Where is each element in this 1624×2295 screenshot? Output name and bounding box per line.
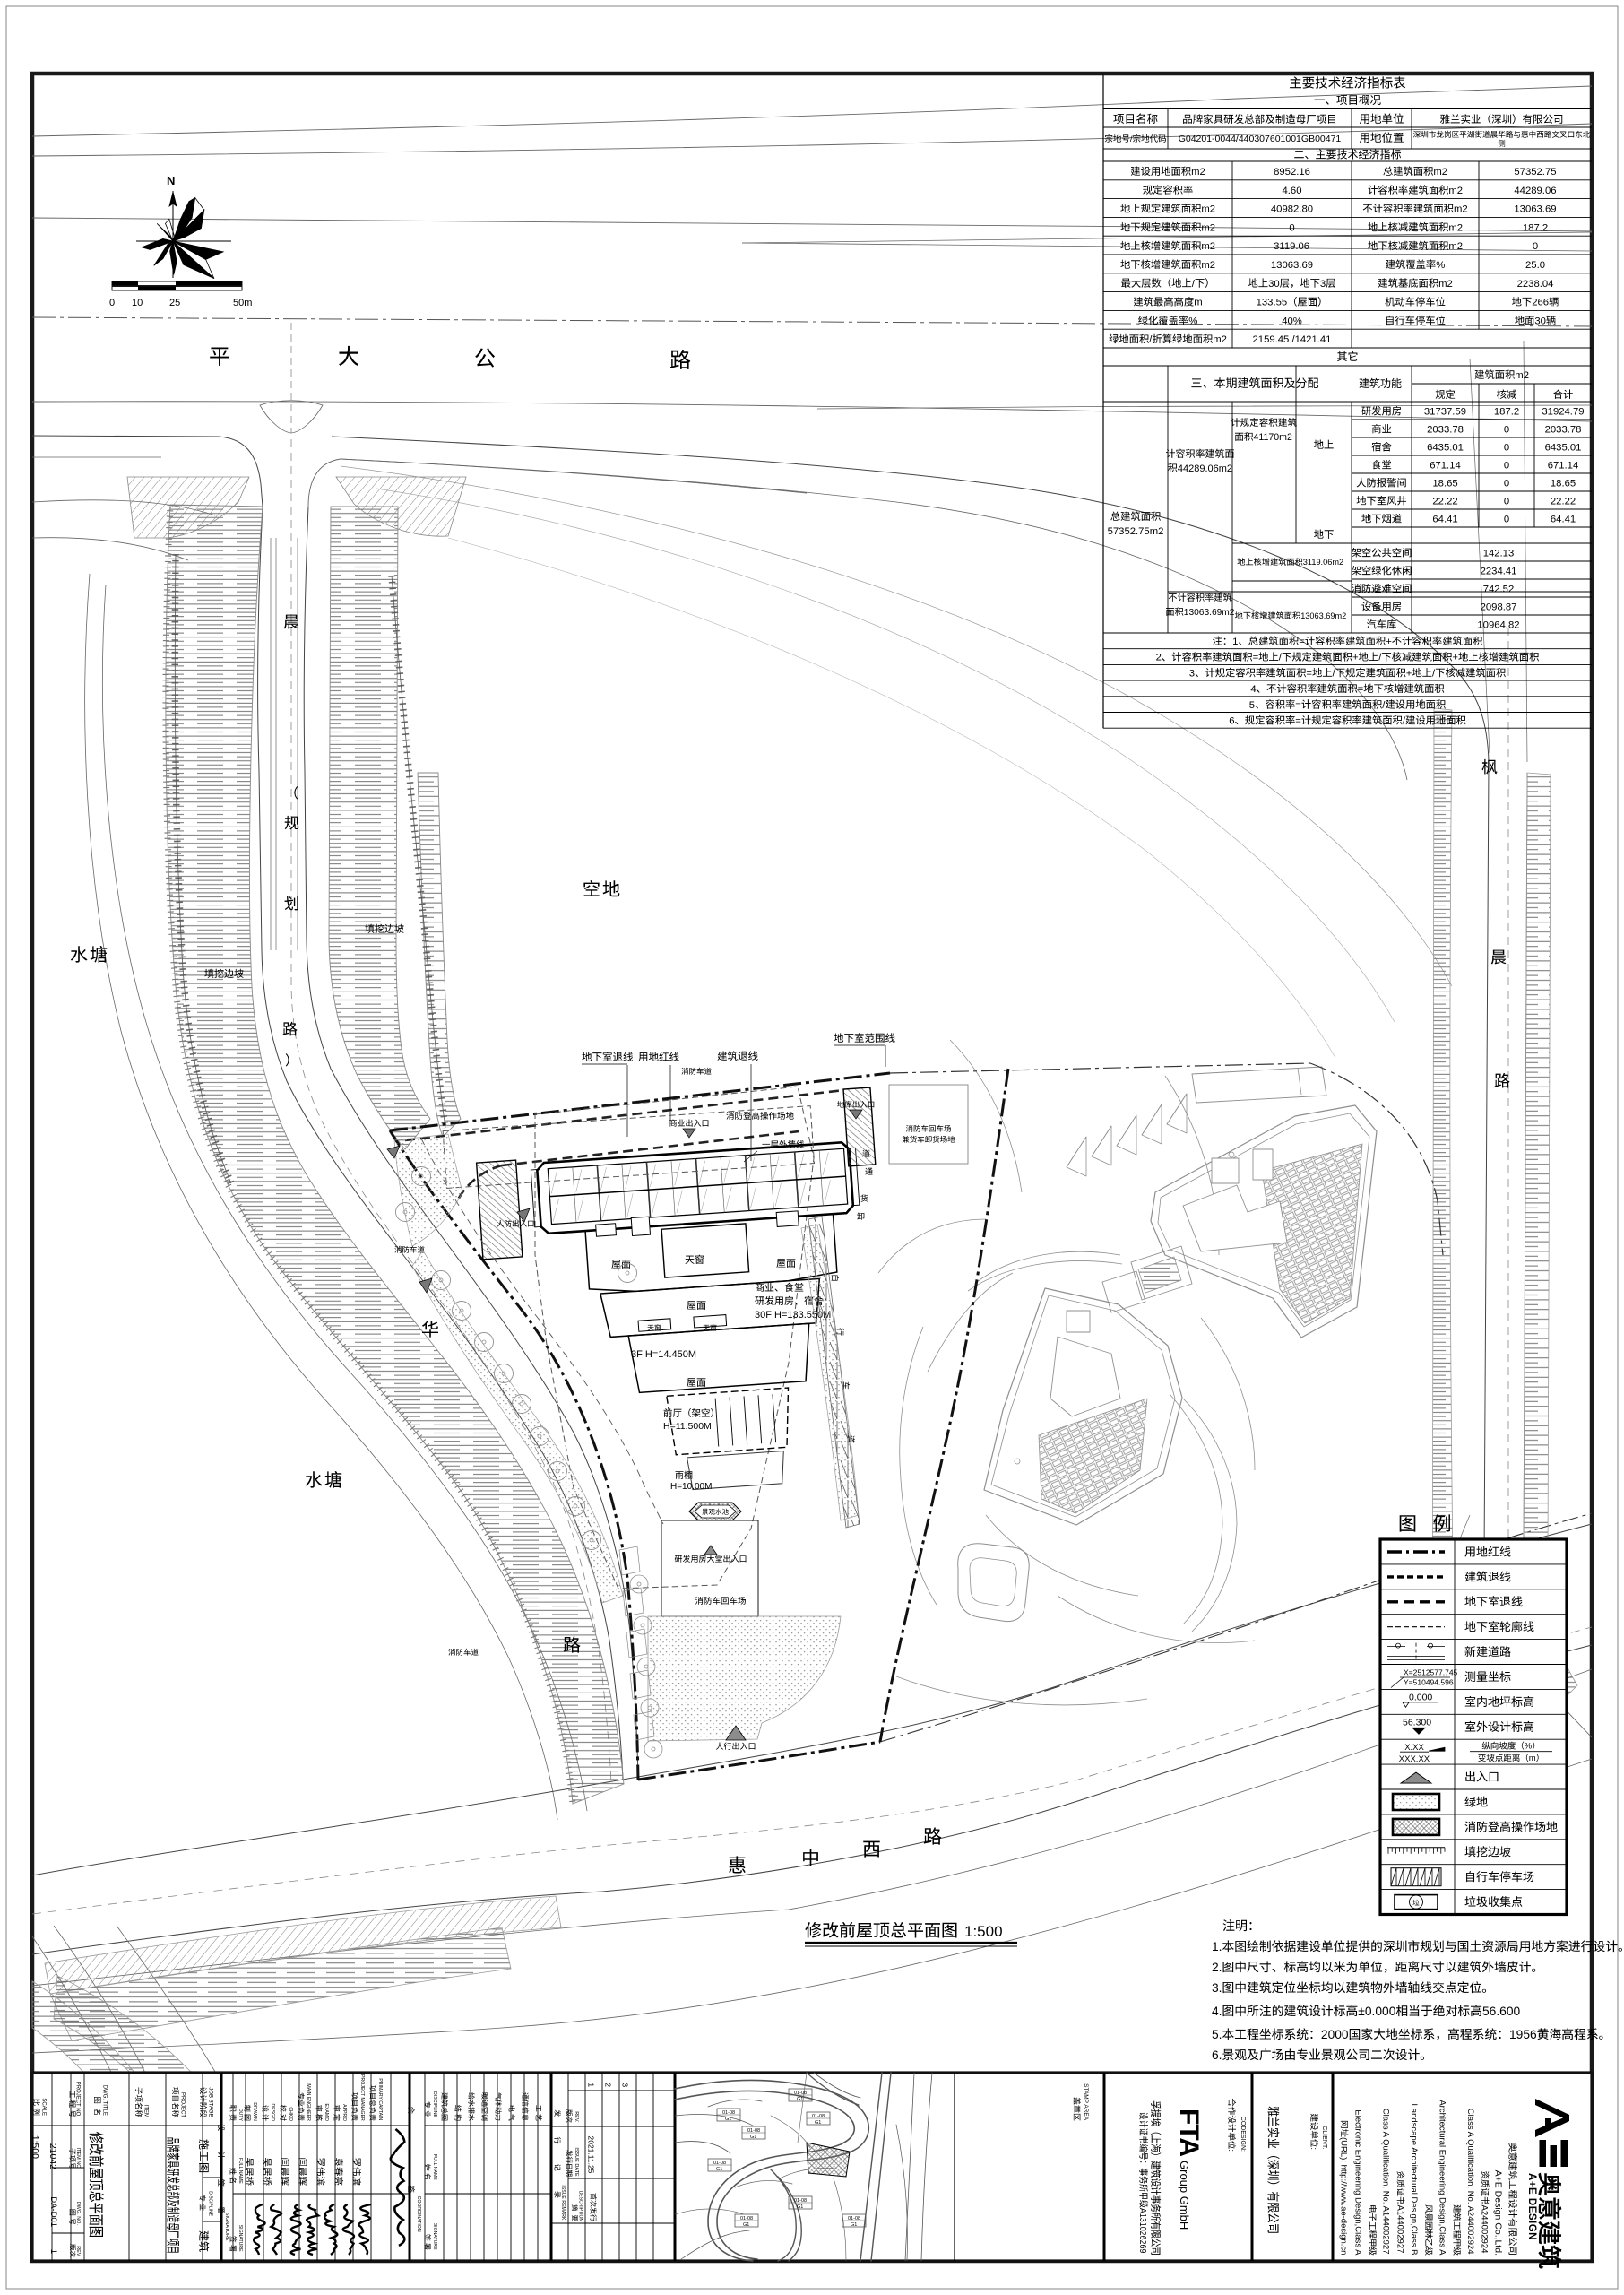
svg-text:6435.01: 6435.01 bbox=[1427, 443, 1464, 454]
svg-text:0: 0 bbox=[1504, 461, 1509, 472]
svg-text:CLIENT:: CLIENT: bbox=[1321, 2126, 1327, 2149]
svg-text:DWG. NO.: DWG. NO. bbox=[75, 2202, 81, 2226]
svg-text:8952.16: 8952.16 bbox=[1274, 167, 1310, 178]
svg-text:3: 3 bbox=[1189, 668, 1195, 679]
svg-text:DESG'D: DESG'D bbox=[270, 2104, 275, 2122]
svg-text:Landscape Architectural Design: Landscape Architectural Design,Class B bbox=[1409, 2104, 1419, 2256]
svg-text:2: 2 bbox=[604, 2083, 613, 2087]
svg-text:10: 10 bbox=[132, 298, 143, 308]
svg-text:0: 0 bbox=[1289, 222, 1294, 233]
svg-text:40%: 40% bbox=[1282, 316, 1302, 326]
svg-text:2: 2 bbox=[1156, 653, 1162, 663]
svg-text:64.41: 64.41 bbox=[1551, 515, 1576, 525]
svg-text:742.52: 742.52 bbox=[1483, 585, 1515, 595]
svg-text:01-08: 01-08 bbox=[794, 2091, 807, 2096]
svg-text:m2: m2 bbox=[1515, 370, 1529, 381]
svg-text:A+E Design Co.,Ltd.: A+E Design Co.,Ltd. bbox=[1493, 2170, 1504, 2256]
svg-text:6435.01: 6435.01 bbox=[1545, 443, 1582, 454]
svg-text:13063.69: 13063.69 bbox=[1514, 204, 1556, 215]
svg-text:SIGNATURE: SIGNATURE bbox=[238, 2225, 243, 2252]
svg-text:DA-D01: DA-D01 bbox=[48, 2196, 58, 2227]
svg-text:0: 0 bbox=[109, 298, 115, 308]
svg-text:0: 0 bbox=[1504, 425, 1509, 436]
svg-text:H=10.00M: H=10.00M bbox=[670, 1482, 712, 1492]
svg-text:57352.75m2: 57352.75m2 bbox=[1108, 526, 1164, 537]
svg-text:30: 30 bbox=[1534, 316, 1546, 326]
svg-text:APPR'D: APPR'D bbox=[341, 2104, 347, 2121]
svg-text:1956: 1956 bbox=[1509, 2028, 1537, 2041]
svg-text:44289.06m2: 44289.06m2 bbox=[1178, 463, 1232, 474]
svg-text:FULL NAME: FULL NAME bbox=[238, 2158, 243, 2184]
svg-text:DISCIPLINE: DISCIPLINE bbox=[432, 2091, 437, 2117]
svg-text:Electronic Engineering Design,: Electronic Engineering Design,Class A bbox=[1352, 2109, 1362, 2256]
svg-text:SCALE: SCALE bbox=[41, 2098, 47, 2116]
svg-text:0.000: 0.000 bbox=[1409, 1692, 1432, 1702]
svg-text:31737.59: 31737.59 bbox=[1424, 407, 1466, 418]
svg-text:DUTY: DUTY bbox=[238, 2109, 243, 2122]
svg-text:m2: m2 bbox=[1433, 167, 1447, 178]
svg-text:3: 3 bbox=[1320, 279, 1326, 290]
svg-text:=: = bbox=[1306, 668, 1312, 679]
svg-text:G1: G1 bbox=[815, 2120, 821, 2126]
svg-text:50m: 50m bbox=[233, 298, 252, 308]
svg-text:COORDINATION: COORDINATION bbox=[416, 2196, 421, 2232]
svg-text:6: 6 bbox=[1229, 716, 1234, 727]
svg-text:m2: m2 bbox=[1201, 260, 1215, 271]
svg-text:JOB STAGE: JOB STAGE bbox=[208, 2087, 213, 2117]
svg-text:30: 30 bbox=[1268, 279, 1280, 290]
svg-text:0: 0 bbox=[1533, 241, 1538, 252]
svg-text:44289.06: 44289.06 bbox=[1514, 186, 1556, 196]
svg-text:57352.75: 57352.75 bbox=[1514, 167, 1556, 178]
svg-text:STAMP AREA: STAMP AREA bbox=[1083, 2083, 1089, 2121]
svg-text:01-08: 01-08 bbox=[812, 2114, 825, 2119]
svg-text:2159.45 /1421.41: 2159.45 /1421.41 bbox=[1253, 334, 1332, 345]
svg-text:56.300: 56.300 bbox=[1403, 1717, 1431, 1728]
svg-text:PROJECT NO.: PROJECT NO. bbox=[75, 2082, 81, 2118]
svg-text:=: = bbox=[1299, 637, 1305, 647]
svg-text:1:500: 1:500 bbox=[30, 2135, 40, 2159]
svg-text:A131026269: A131026269 bbox=[1137, 2208, 1148, 2254]
svg-text:m2: m2 bbox=[1191, 167, 1205, 178]
svg-text:64.41: 64.41 bbox=[1432, 515, 1457, 525]
svg-text:=: = bbox=[1295, 700, 1301, 711]
svg-text:REV.: REV. bbox=[574, 2111, 579, 2123]
svg-text:FTA: FTA bbox=[1174, 2109, 1204, 2156]
svg-text:m2: m2 bbox=[1448, 186, 1463, 196]
svg-text:=: = bbox=[1295, 716, 1301, 727]
svg-text:1: 1 bbox=[587, 2083, 596, 2087]
svg-text:A144002927: A144002927 bbox=[1395, 2205, 1404, 2254]
svg-text:0: 0 bbox=[1504, 443, 1509, 454]
svg-text:PROJECT MANAGER: PROJECT MANAGER bbox=[359, 2074, 365, 2121]
svg-text:2098.87: 2098.87 bbox=[1481, 602, 1517, 613]
svg-text:Architectural Engineering Desi: Architectural Engineering Design,Class A bbox=[1438, 2100, 1447, 2256]
svg-text:3119.06m2: 3119.06m2 bbox=[1303, 558, 1343, 567]
svg-text:(URL): http://www.ae-design.cn: (URL): http://www.ae-design.cn bbox=[1339, 2137, 1349, 2255]
svg-text:Y=510494.596: Y=510494.596 bbox=[1404, 1678, 1454, 1687]
svg-text:01-08: 01-08 bbox=[747, 2128, 760, 2134]
svg-text:EXAM'D: EXAM'D bbox=[324, 2104, 329, 2122]
svg-text:m2: m2 bbox=[1213, 334, 1227, 345]
svg-text::: : bbox=[1226, 2149, 1236, 2152]
svg-text:671.14: 671.14 bbox=[1548, 461, 1579, 472]
svg-text:=: = bbox=[1358, 684, 1364, 695]
svg-text:PRIMARY CAPTAIN: PRIMARY CAPTAIN bbox=[377, 2078, 383, 2120]
svg-text:5: 5 bbox=[1249, 700, 1255, 711]
svg-text:+: + bbox=[1352, 653, 1359, 663]
svg-text:CHK'D: CHK'D bbox=[288, 2107, 293, 2121]
svg-text:G1: G1 bbox=[725, 2117, 731, 2122]
svg-text:H=11.500M: H=11.500M bbox=[663, 1421, 712, 1432]
svg-text:ISSUE DATE: ISSUE DATE bbox=[574, 2147, 579, 2177]
svg-text:2238.04: 2238.04 bbox=[1517, 279, 1554, 290]
svg-text:01-08: 01-08 bbox=[740, 2216, 753, 2221]
svg-text:%: % bbox=[1188, 316, 1197, 326]
svg-text:DRAW'N: DRAW'N bbox=[252, 2102, 257, 2121]
svg-text:4: 4 bbox=[1250, 684, 1256, 695]
svg-text:ITEM NO.: ITEM NO. bbox=[75, 2148, 81, 2170]
svg-text:A+E DESIGN: A+E DESIGN bbox=[1526, 2173, 1537, 2240]
svg-text:25.0: 25.0 bbox=[1525, 260, 1545, 271]
svg-text:41170m2: 41170m2 bbox=[1254, 432, 1292, 443]
svg-text:0: 0 bbox=[1504, 497, 1509, 507]
svg-text:PROJECT: PROJECT bbox=[180, 2092, 186, 2117]
svg-text:G1: G1 bbox=[716, 2167, 722, 2172]
svg-text:±0.000: ±0.000 bbox=[1358, 2005, 1395, 2018]
svg-text:2033.78: 2033.78 bbox=[1427, 425, 1464, 436]
svg-text:01-08: 01-08 bbox=[848, 2216, 860, 2221]
svg-text:18.65: 18.65 bbox=[1551, 479, 1576, 489]
svg-text:2033.78: 2033.78 bbox=[1545, 425, 1582, 436]
svg-text:Class A Qualification, No. A14: Class A Qualification, No. A144002927 bbox=[1381, 2109, 1391, 2255]
svg-text:1: 1 bbox=[1232, 637, 1238, 647]
svg-text:0: 0 bbox=[1504, 479, 1509, 489]
svg-text:1: 1 bbox=[48, 2249, 58, 2254]
svg-text:6.: 6. bbox=[1212, 2048, 1222, 2062]
svg-text:G1: G1 bbox=[797, 2097, 803, 2102]
svg-text:3: 3 bbox=[621, 2083, 630, 2087]
svg-text:m2: m2 bbox=[1438, 279, 1453, 290]
svg-text:m: m bbox=[1194, 298, 1202, 308]
svg-text:ITEM: ITEM bbox=[143, 2105, 149, 2117]
svg-text:187.2: 187.2 bbox=[1494, 407, 1519, 418]
svg-text:2000: 2000 bbox=[1321, 2028, 1349, 2041]
svg-text:+: + bbox=[1406, 668, 1412, 679]
svg-text:FULL NAME: FULL NAME bbox=[432, 2154, 437, 2180]
svg-text:m2: m2 bbox=[1454, 204, 1468, 215]
svg-text:XXX.XX: XXX.XX bbox=[1399, 1754, 1430, 1764]
svg-text:Group GmbH: Group GmbH bbox=[1178, 2161, 1191, 2230]
svg-text:%: % bbox=[1525, 1742, 1533, 1752]
svg-text:G1: G1 bbox=[851, 2222, 857, 2228]
svg-text::: : bbox=[1309, 2147, 1318, 2150]
svg-text:4.: 4. bbox=[1212, 2005, 1222, 2018]
svg-text:31924.79: 31924.79 bbox=[1542, 407, 1584, 418]
svg-text:m: m bbox=[1529, 1754, 1536, 1763]
svg-text:N: N bbox=[167, 174, 175, 187]
svg-text:01-08: 01-08 bbox=[722, 2110, 735, 2116]
svg-text:G04201-0044/440307601001GB0047: G04201-0044/440307601001GB00471 bbox=[1179, 134, 1342, 144]
svg-text:CODESIGN:: CODESIGN: bbox=[1240, 2117, 1246, 2152]
svg-text:SIGNATURE: SIGNATURE bbox=[432, 2223, 437, 2250]
svg-text:m2: m2 bbox=[1201, 222, 1215, 233]
svg-text:m2: m2 bbox=[1201, 241, 1215, 252]
svg-text:X.XX: X.XX bbox=[1404, 1743, 1424, 1753]
svg-text:DWG. TITLE: DWG. TITLE bbox=[102, 2085, 108, 2116]
svg-text:A244002924: A244002924 bbox=[1480, 2205, 1490, 2254]
svg-text:MAIN ENGINEER: MAIN ENGINEER bbox=[306, 2083, 311, 2121]
svg-text:10964.82: 10964.82 bbox=[1477, 620, 1519, 631]
svg-text:1.: 1. bbox=[1212, 1940, 1222, 1953]
svg-text:+: + bbox=[1452, 653, 1458, 663]
svg-text:13063.69: 13063.69 bbox=[1271, 260, 1313, 271]
svg-text:2021.11.25: 2021.11.25 bbox=[587, 2136, 596, 2174]
svg-text:m2: m2 bbox=[1448, 222, 1463, 233]
svg-text:Class A Qualification, No. A24: Class A Qualification, No. A244002924 bbox=[1465, 2109, 1475, 2255]
svg-text:13063.69m2: 13063.69m2 bbox=[1184, 608, 1235, 618]
svg-text:G1: G1 bbox=[743, 2222, 749, 2228]
svg-text:3F H=14.450M: 3F H=14.450M bbox=[631, 1349, 696, 1360]
svg-text:3.: 3. bbox=[1212, 1981, 1222, 1995]
svg-text:187.2: 187.2 bbox=[1523, 222, 1548, 233]
svg-text:G1: G1 bbox=[797, 2204, 803, 2210]
svg-text:13063.69m2: 13063.69m2 bbox=[1300, 611, 1346, 620]
svg-text:671.14: 671.14 bbox=[1430, 461, 1461, 472]
svg-text:X=2512577.745: X=2512577.745 bbox=[1404, 1668, 1458, 1677]
svg-text:133.55: 133.55 bbox=[1257, 298, 1288, 308]
svg-text:=: = bbox=[1253, 653, 1259, 663]
svg-text:22.22: 22.22 bbox=[1551, 497, 1576, 507]
svg-text:01-08: 01-08 bbox=[713, 2161, 726, 2166]
svg-text:1:500: 1:500 bbox=[964, 1923, 1003, 1940]
svg-text:2.: 2. bbox=[1212, 1961, 1222, 1974]
svg-text:DISCIPLINE: DISCIPLINE bbox=[207, 2191, 212, 2216]
svg-text:25: 25 bbox=[169, 298, 180, 308]
svg-text:4.60: 4.60 bbox=[1283, 186, 1302, 196]
svg-text:m2: m2 bbox=[1201, 204, 1215, 215]
svg-text:SIGNATURE: SIGNATURE bbox=[224, 2213, 229, 2241]
svg-text:m2: m2 bbox=[1448, 241, 1463, 252]
svg-text:5.: 5. bbox=[1212, 2028, 1222, 2041]
svg-text:2234.41: 2234.41 bbox=[1481, 567, 1517, 577]
svg-text:01-08: 01-08 bbox=[794, 2198, 807, 2204]
svg-text:266: 266 bbox=[1532, 298, 1549, 308]
svg-text:G1: G1 bbox=[750, 2135, 756, 2140]
svg-text:18.65: 18.65 bbox=[1432, 479, 1457, 489]
svg-text:3119.06: 3119.06 bbox=[1274, 241, 1309, 252]
svg-text:ISSUE REMARK: ISSUE REMARK bbox=[560, 2185, 566, 2221]
svg-text:/: / bbox=[1130, 134, 1133, 144]
svg-text:REV.: REV. bbox=[75, 2246, 81, 2257]
svg-text:40982.80: 40982.80 bbox=[1271, 204, 1313, 215]
svg-text:21042: 21042 bbox=[48, 2143, 58, 2169]
svg-text:+: + bbox=[1386, 637, 1392, 647]
svg-text:%: % bbox=[1436, 260, 1445, 271]
svg-text:142.13: 142.13 bbox=[1483, 549, 1515, 559]
svg-text:0: 0 bbox=[1504, 515, 1509, 525]
svg-text:DESCRIPTION: DESCRIPTION bbox=[577, 2191, 583, 2222]
svg-text:56.600: 56.600 bbox=[1482, 2005, 1521, 2018]
svg-text:22.22: 22.22 bbox=[1432, 497, 1457, 507]
